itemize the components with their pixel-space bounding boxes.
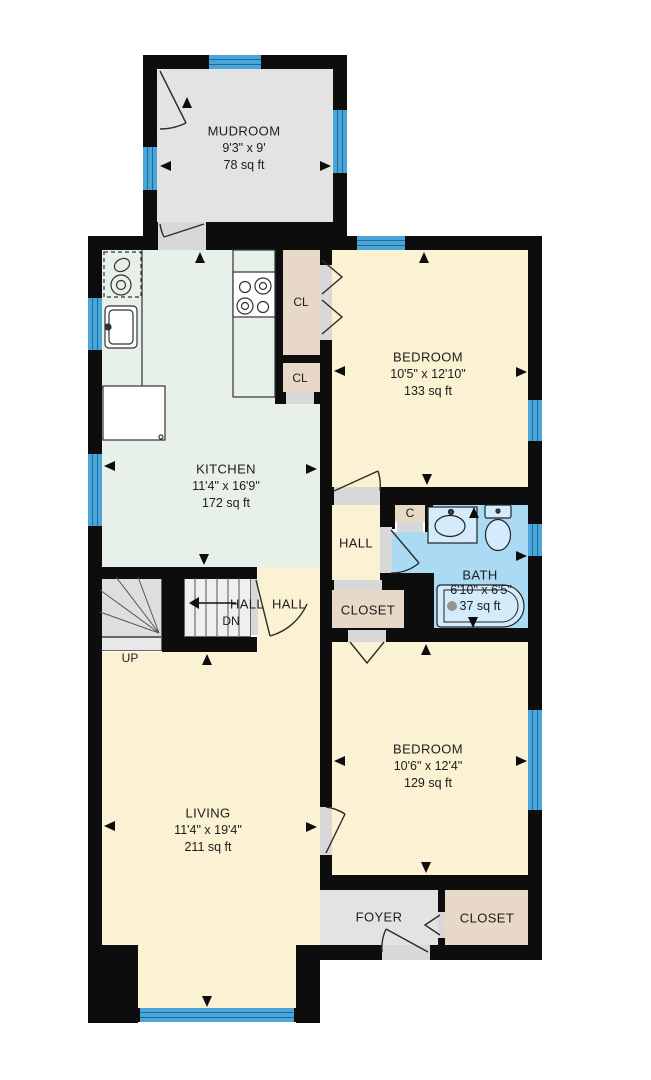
- closet-door-chevron: [425, 915, 440, 935]
- door-arc: [382, 929, 428, 952]
- bath-faucet-icon: [449, 510, 454, 515]
- dimension-arrow: [182, 97, 192, 108]
- bathtub-drain-icon: [447, 601, 457, 611]
- mudroom-dims: 9'3" x 9': [222, 141, 265, 155]
- door-arc: [160, 224, 204, 237]
- bedroom-top-dims: 10'5" x 12'10": [390, 367, 466, 381]
- dimension-arrow: [195, 252, 205, 263]
- stairs-up-treads: [100, 577, 159, 633]
- dimension-arrow: [202, 996, 212, 1007]
- appliance-burner-icon: [117, 281, 126, 290]
- dimension-arrow: [422, 474, 432, 485]
- dimension-arrow: [468, 617, 478, 628]
- bedroom-top-label: BEDROOM: [393, 350, 463, 365]
- kitchen-area: 172 sq ft: [202, 496, 250, 510]
- dimension-arrow: [421, 644, 431, 655]
- dimension-arrow: [421, 862, 431, 873]
- living-dims: 11'4" x 19'4": [174, 823, 242, 837]
- dimension-arrow: [306, 464, 317, 474]
- dimension-arrow: [516, 367, 527, 377]
- dimension-arrow: [334, 366, 345, 376]
- dimension-arrow: [202, 654, 212, 665]
- stairs-down-arrowhead: [189, 597, 199, 609]
- living-area: 211 sq ft: [184, 840, 231, 854]
- cl-lower-label: CL: [292, 371, 307, 385]
- kitchen-label: KITCHEN: [196, 462, 256, 477]
- dimension-arrow: [419, 252, 429, 263]
- dimension-arrow: [160, 161, 171, 171]
- dimension-arrow: [516, 756, 527, 766]
- bath-area: 37 sq ft: [460, 599, 501, 613]
- hall-stairs-label: HALL: [230, 597, 264, 612]
- bedroom-bottom-dims: 10'6" x 12'4": [394, 759, 463, 773]
- closet-mid-label: CLOSET: [341, 603, 395, 618]
- bath-dims: 6'10" x 6'5": [450, 583, 512, 597]
- bedroom-top-area: 133 sq ft: [404, 384, 452, 398]
- door-arc: [326, 807, 345, 853]
- dimension-arrow: [334, 756, 345, 766]
- dimension-arrow: [104, 821, 115, 831]
- floor-plan: MUDROOM 9'3" x 9' 78 sq ft KITCHEN 11'4"…: [0, 0, 651, 1080]
- appliance-burner-icon: [111, 275, 131, 295]
- toilet-button-icon: [496, 509, 500, 513]
- dimension-arrow: [306, 822, 317, 832]
- living-label: LIVING: [185, 806, 230, 821]
- door-arc: [391, 530, 419, 573]
- bifold-door-chevron: [322, 260, 342, 294]
- toilet-bowl-icon: [486, 520, 511, 551]
- bedroom-bottom-label: BEDROOM: [393, 742, 463, 757]
- hall-corridor-label: HALL: [272, 597, 306, 612]
- kitchen-faucet-icon: [105, 324, 111, 330]
- cl-upper-label: CL: [293, 295, 308, 309]
- bath-label: BATH: [462, 568, 497, 583]
- kitchen-dims: 11'4" x 16'9": [192, 479, 260, 493]
- bifold-door-chevron: [322, 300, 342, 334]
- fridge-icon: [103, 386, 165, 440]
- dimension-arrow: [516, 551, 527, 561]
- dimension-arrow: [320, 161, 331, 171]
- hall-center-label: HALL: [339, 536, 373, 551]
- appliance-basin-icon: [112, 256, 132, 274]
- mudroom-area: 78 sq ft: [224, 158, 265, 172]
- dimension-arrow: [469, 507, 479, 518]
- door-arc: [334, 471, 380, 491]
- foyer-label: FOYER: [356, 910, 403, 925]
- dimension-arrow: [104, 461, 115, 471]
- closet-door-chevron: [350, 642, 384, 663]
- stove-icon: [233, 272, 275, 317]
- closet-entry-label: CLOSET: [460, 911, 514, 926]
- bedroom-bottom-area: 129 sq ft: [404, 776, 452, 790]
- stairs-up-label: UP: [122, 651, 139, 665]
- c-closet-label: C: [406, 506, 415, 520]
- stairs-down-label: DN: [222, 614, 239, 628]
- dimension-arrow: [199, 554, 209, 565]
- mudroom-label: MUDROOM: [208, 124, 281, 139]
